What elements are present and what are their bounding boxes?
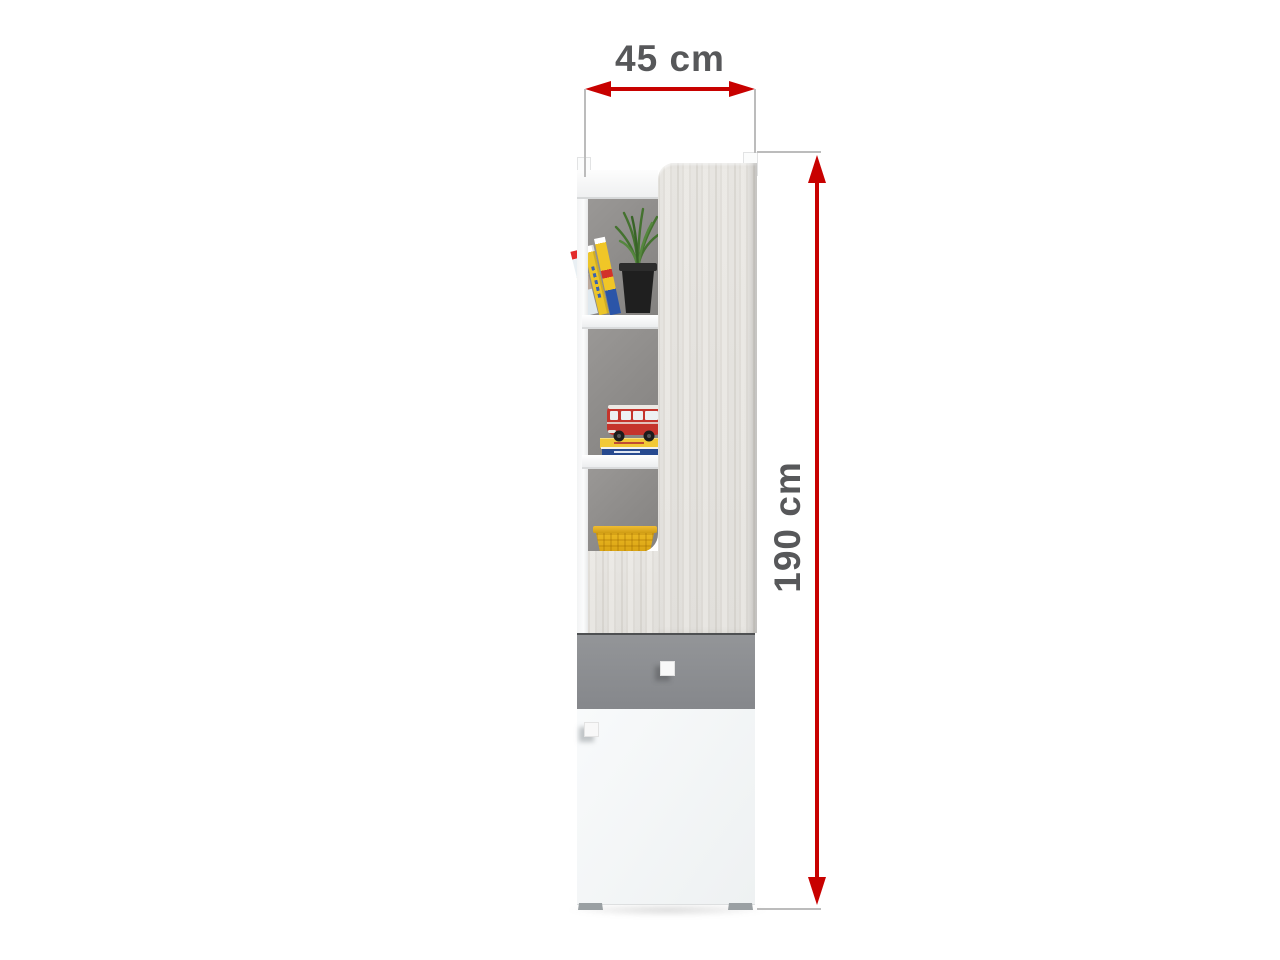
plant-pot-rim [619,263,657,271]
left-side-panel-edge [577,170,588,633]
width-dimension-arrow [585,81,755,97]
width-dimension-label: 45 cm [585,38,755,80]
shelf-compartment-middle [588,327,658,455]
cabinet-top-board [577,170,658,199]
plant-pot [622,271,654,313]
door-front [577,709,755,905]
yellow-wicker-basket [596,533,654,552]
shelf-compartment-bottom [588,467,658,552]
arrow-line [815,173,819,887]
red-toy-bus [606,401,664,443]
shelf-compartment-top [588,197,658,315]
extension-line-width-right [754,89,756,153]
height-dimension-label: 190 cm [767,461,809,593]
extension-line-height-bottom [757,908,821,910]
extension-line-height-top [757,151,821,153]
extension-line-width-left [584,89,586,177]
wood-apron-panel [583,551,658,633]
arrow-head-bottom [808,877,826,905]
potted-grass-plant [612,205,664,317]
drawer-knob [660,661,675,676]
wood-side-panel [658,163,757,633]
furniture-dimension-diagram: 45 cm 190 cm [0,0,1280,960]
wicker-basket-rim [593,526,657,533]
arrow-line [601,87,739,91]
cabinet-foot-left [578,903,603,910]
cabinet-foot-right [728,903,753,910]
book-spine-text [614,451,640,453]
arrow-head-right [729,81,755,97]
shelf-board-upper [582,315,658,329]
shelf-board-lower [582,455,658,469]
door-knob [584,722,599,737]
height-dimension-arrow [808,155,826,905]
